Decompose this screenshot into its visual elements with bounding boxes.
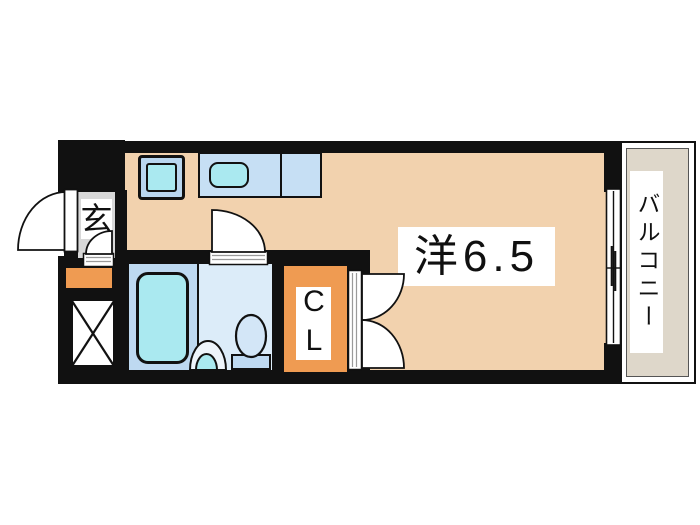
balcony-label: バルコニー — [630, 171, 663, 353]
bathtub-icon — [136, 272, 189, 364]
counter-divider — [280, 154, 282, 196]
entrance-door-swing-icon — [18, 192, 66, 250]
wall-genkan-right — [115, 190, 127, 258]
shoe-cabinet — [64, 266, 114, 290]
closet-label: CL — [296, 287, 331, 360]
kitchen-sink-icon — [209, 162, 249, 188]
main-room-label: 洋6.5 — [398, 227, 555, 286]
entrance-door-leaf-icon — [65, 190, 78, 252]
kitchen-stove-icon — [138, 155, 185, 200]
pipe-space — [70, 298, 116, 368]
kitchen-counter — [198, 152, 322, 198]
kitchen-stove-top-icon — [146, 163, 177, 192]
wall-bottom — [58, 370, 624, 384]
wall-top — [115, 141, 625, 153]
floor-plan: 玄 洋6.5 CL バルコニー — [0, 0, 700, 525]
sliding-window-icon — [607, 189, 621, 345]
washroom-floor — [197, 264, 272, 370]
genkan-label: 玄 — [81, 199, 112, 239]
